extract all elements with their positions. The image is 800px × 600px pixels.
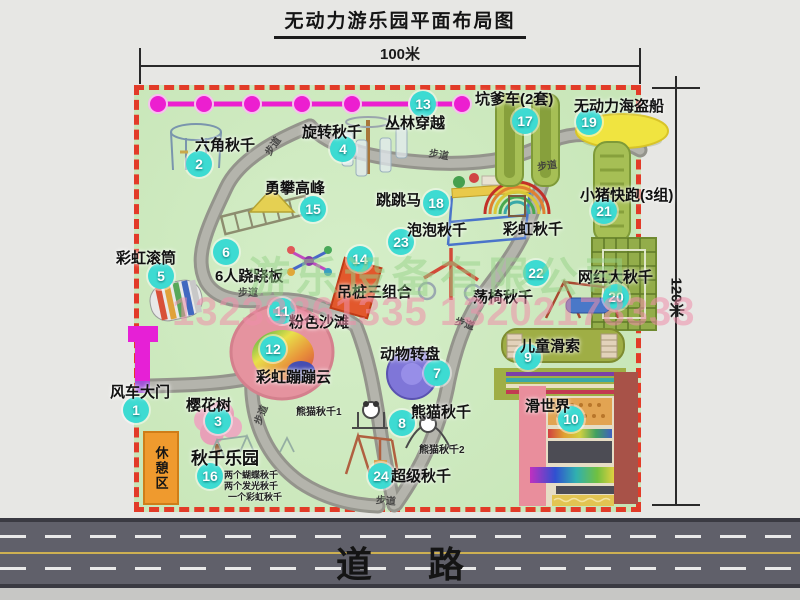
road-shoulder: [0, 588, 800, 600]
attraction-label: 网红大秋千: [578, 266, 653, 287]
path-label: 步道: [249, 402, 270, 426]
attraction-label: 儿童滑索: [520, 335, 580, 356]
attraction-label: 超级秋千: [391, 465, 451, 486]
attraction-badge-14: 14: [347, 246, 373, 272]
attraction-label: 丛林穿越: [385, 112, 445, 133]
attraction-badge-12: 12: [260, 336, 286, 362]
rest-area-label: 休憩区: [152, 446, 171, 491]
small-label: 熊猫秋千1: [296, 403, 342, 418]
attraction-label: 勇攀高峰: [265, 177, 325, 198]
path-label: 步道: [428, 144, 450, 162]
attraction-label: 小猪快跑(3组): [580, 184, 673, 205]
road: 道路: [0, 518, 800, 588]
attraction-label: 风车大门: [110, 381, 170, 402]
attraction-label: 彩虹蹦蹦云: [256, 366, 331, 387]
attraction-badge-20: 20: [603, 284, 629, 310]
attraction-label: 樱花树: [186, 394, 231, 415]
path-label: 步道: [536, 156, 558, 174]
page-title: 无动力游乐园平面布局图: [274, 6, 525, 39]
small-label: 一个彩虹秋千: [228, 490, 282, 503]
attraction-badge-15: 15: [300, 196, 326, 222]
attraction-label: 无动力海盗船: [574, 95, 664, 116]
small-label: 熊猫秋千2: [419, 441, 465, 456]
attraction-label: 滑世界: [525, 395, 570, 416]
attraction-badge-18: 18: [423, 190, 449, 216]
path-label: 步道: [453, 312, 477, 332]
path-label: 步道: [260, 133, 284, 158]
path-label: 步道: [238, 284, 258, 299]
attraction-label: 彩虹滚筒: [116, 247, 176, 268]
road-label: 道路: [0, 536, 800, 588]
rest-area-box: 休憩区: [143, 431, 179, 505]
attraction-label: 秋千乐园: [191, 444, 259, 469]
attraction-label: 六角秋千: [195, 134, 255, 155]
attraction-label: 吊桩三组合: [337, 281, 412, 302]
attraction-label: 熊猫秋千: [411, 401, 471, 422]
labels-layer: 1风车大门2六角秋千3樱花树4旋转秋千5彩虹滚筒66人跷跷板7动物转盘8熊猫秋千…: [0, 0, 800, 600]
attraction-badge-6: 6: [213, 239, 239, 265]
attraction-label: 坑爹车(2套): [475, 88, 553, 109]
attraction-label: 旋转秋千: [302, 121, 362, 142]
attraction-label: 彩虹秋千: [503, 218, 563, 239]
attraction-label: 6人跷跷板: [215, 265, 283, 286]
attraction-badge-17: 17: [512, 108, 538, 134]
attraction-label: 跳跳马: [376, 189, 421, 210]
path-label: 步道: [375, 491, 396, 508]
screenshot-canvas: 无动力游乐园平面布局图 100米 120米: [0, 0, 800, 600]
page-title-wrap: 无动力游乐园平面布局图: [0, 6, 800, 39]
attraction-label: 动物转盘: [380, 343, 440, 364]
attraction-label: 荡椅秋千: [473, 286, 533, 307]
attraction-label: 粉色沙滩: [289, 311, 349, 332]
attraction-badge-22: 22: [523, 260, 549, 286]
attraction-label: 泡泡秋千: [407, 219, 467, 240]
